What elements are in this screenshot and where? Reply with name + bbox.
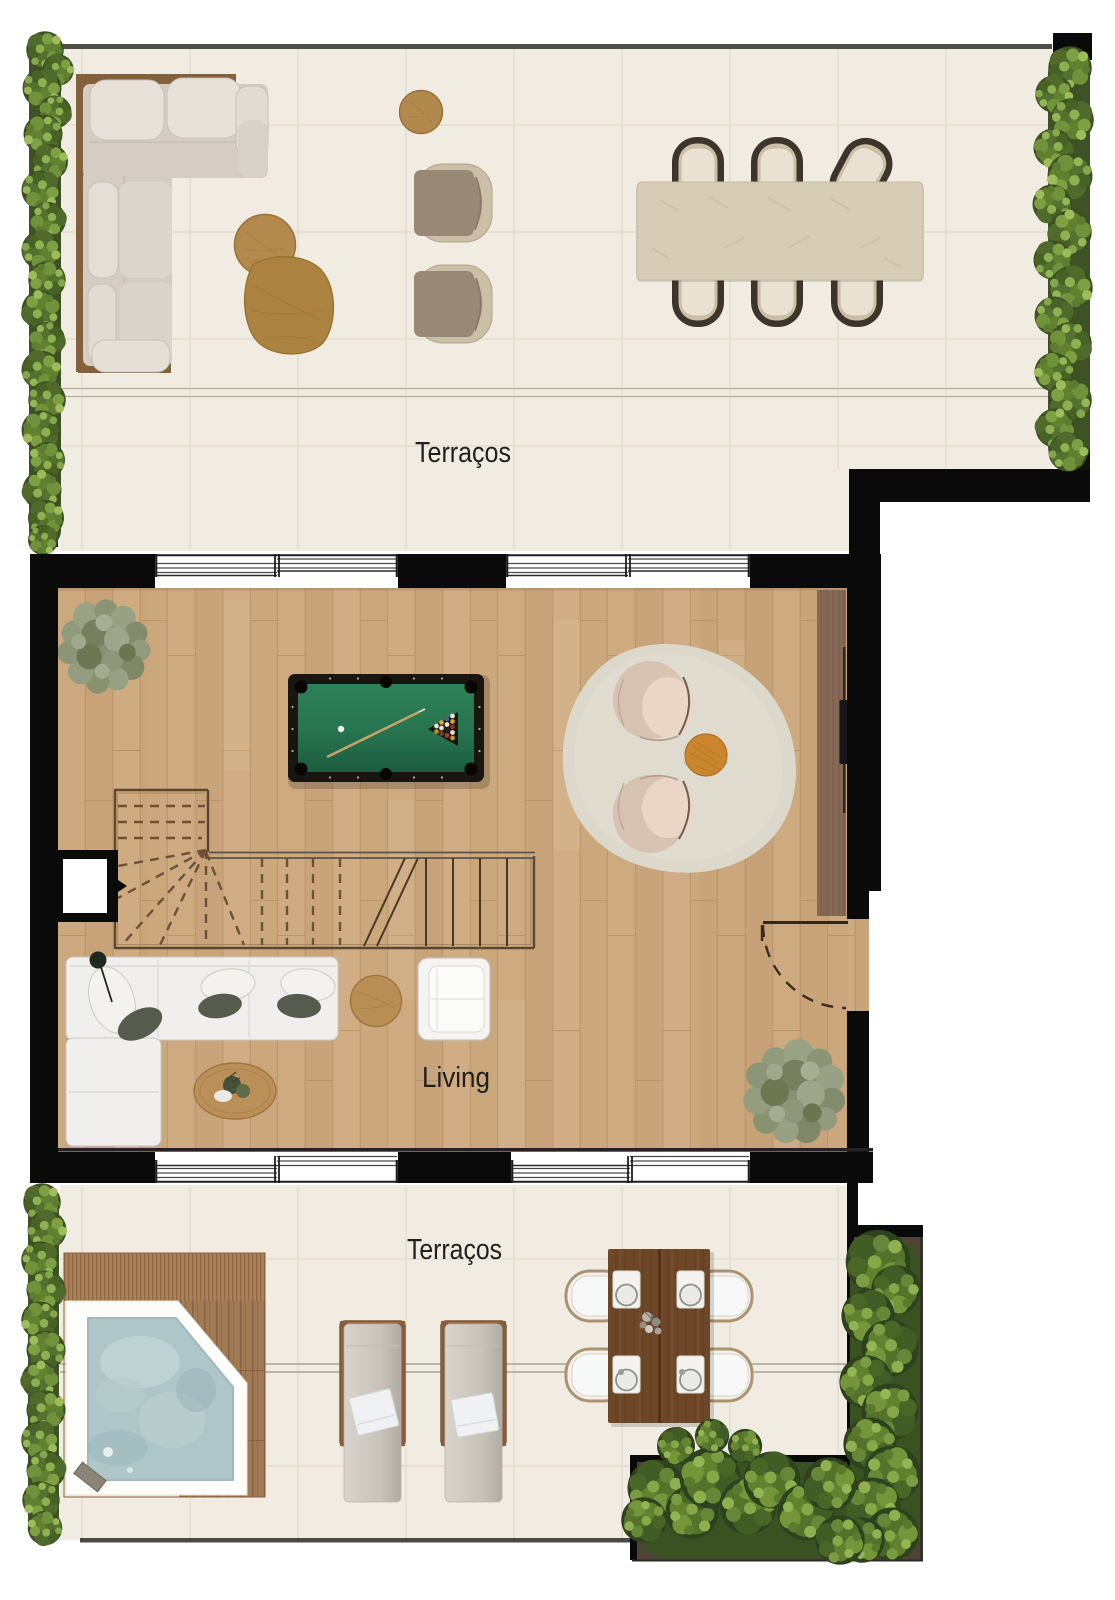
svg-text:Terraços: Terraços [407, 1234, 502, 1266]
svg-text:Living: Living [422, 1062, 490, 1094]
svg-text:Terraços: Terraços [415, 437, 511, 469]
